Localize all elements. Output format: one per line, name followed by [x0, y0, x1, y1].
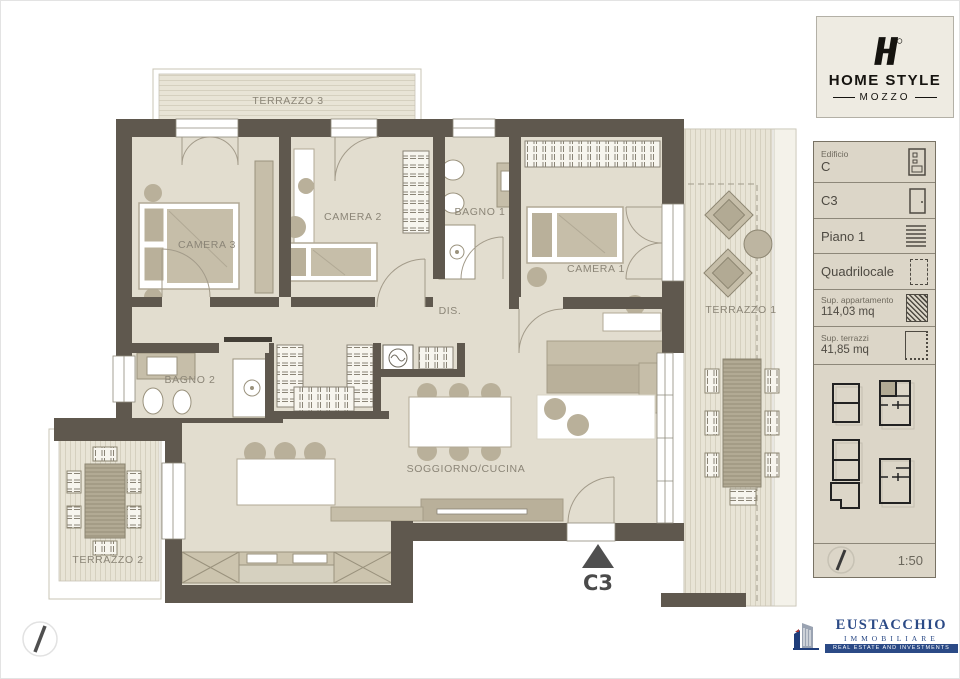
unit-value: C3 — [821, 193, 838, 208]
room-label-camera3: CAMERA 3 — [178, 239, 236, 251]
site-keyplan — [814, 365, 935, 544]
room-label-bagno2: BAGNO 2 — [165, 374, 216, 386]
kitchen-counter — [182, 552, 392, 583]
brand-subtitle: MOZZO — [833, 92, 936, 103]
type-value: Quadrilocale — [821, 264, 894, 279]
room-label-camera1: CAMERA 1 — [567, 263, 625, 275]
room-label-soggiorno: SOGGIORNO/CUCINA — [407, 463, 526, 475]
scale-value: 1:50 — [898, 553, 923, 568]
brand-subtitle-text: MOZZO — [859, 92, 910, 103]
eustacchio-building-icon — [791, 618, 821, 652]
room-label-dis: DIS. — [439, 305, 462, 317]
homestyle-logo: HOME STYLE MOZZO — [816, 16, 954, 118]
sup-ter-label: Sup. terrazzi — [821, 334, 869, 344]
sup-app-label: Sup. appartamento — [821, 296, 893, 306]
entrance-arrow-icon — [582, 544, 614, 568]
room-label-bagno1: BAGNO 1 — [455, 206, 506, 218]
row-sup-app: Sup. appartamento 114,03 mq — [814, 290, 935, 327]
site-keyplan-drawing — [820, 365, 930, 543]
entrance-marker: C3 — [582, 544, 614, 595]
building-icon — [906, 147, 928, 177]
footer-tagline: REAL ESTATE AND INVESTMENTS — [825, 644, 958, 654]
row-floor: Piano 1 — [814, 219, 935, 254]
scale-row: 1:50 — [814, 544, 935, 577]
footer-brand2: IMMOBILIARE — [844, 633, 939, 644]
room-label-terrazzo3: TERRAZZO 3 — [252, 95, 323, 107]
edificio-value: C — [821, 160, 848, 175]
floor-level-icon — [904, 223, 928, 249]
rule-left — [833, 97, 855, 98]
unit-info-panel: Edificio C C3 Piano 1 Quadriloca — [813, 141, 936, 578]
row-unit: C3 — [814, 183, 935, 218]
eustacchio-logo: EUSTACCHIO IMMOBILIARE REAL ESTATE AND I… — [791, 618, 959, 672]
north-indicator-icon — [23, 622, 57, 656]
rule-right — [915, 97, 937, 98]
orientation-icon — [826, 545, 856, 575]
unit-marker-label: C3 — [583, 571, 613, 595]
door-icon — [906, 187, 928, 215]
floor-value: Piano 1 — [821, 229, 865, 244]
sliding-door-leaf — [224, 337, 272, 342]
brand-title: HOME STYLE — [829, 72, 942, 89]
homestyle-monogram-icon — [865, 32, 905, 70]
room-label-camera2: CAMERA 2 — [324, 211, 382, 223]
terrace-area-icon — [905, 331, 928, 360]
sup-app-value: 114,03 mq — [821, 306, 893, 319]
apartment-area-icon — [906, 294, 928, 322]
room-label-terrazzo1: TERRAZZO 1 — [705, 304, 776, 316]
floorplan-sheet: TERRAZZO 3 CAMERA 3 CAMERA 2 BAGNO 1 CAM… — [0, 0, 960, 679]
row-sup-ter: Sup. terrazzi 41,85 mq — [814, 327, 935, 364]
row-type: Quadrilocale — [814, 254, 935, 289]
room-label-terrazzo2: TERRAZZO 2 — [72, 554, 143, 566]
sup-ter-value: 41,85 mq — [821, 344, 869, 357]
unit-outline-icon — [910, 259, 928, 285]
row-edificio: Edificio C — [814, 142, 935, 183]
footer-brand: EUSTACCHIO — [836, 618, 947, 633]
